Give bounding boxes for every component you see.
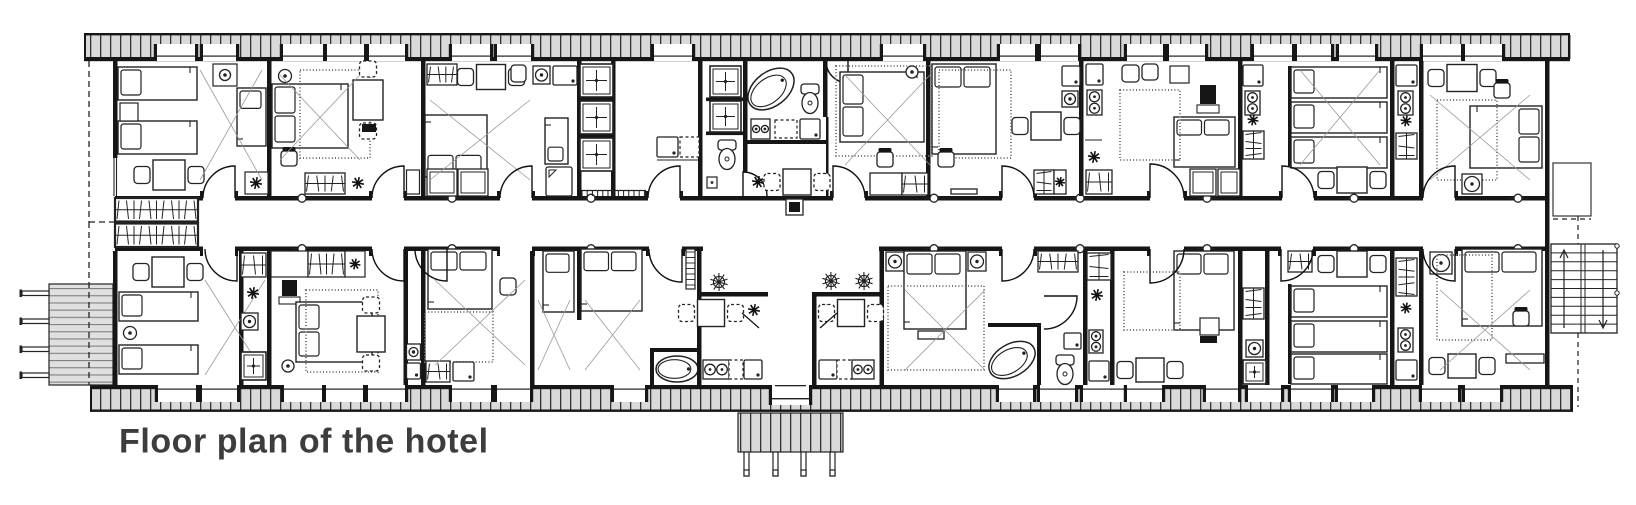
svg-text:Floor plan of the hotel: Floor plan of the hotel <box>119 423 489 461</box>
